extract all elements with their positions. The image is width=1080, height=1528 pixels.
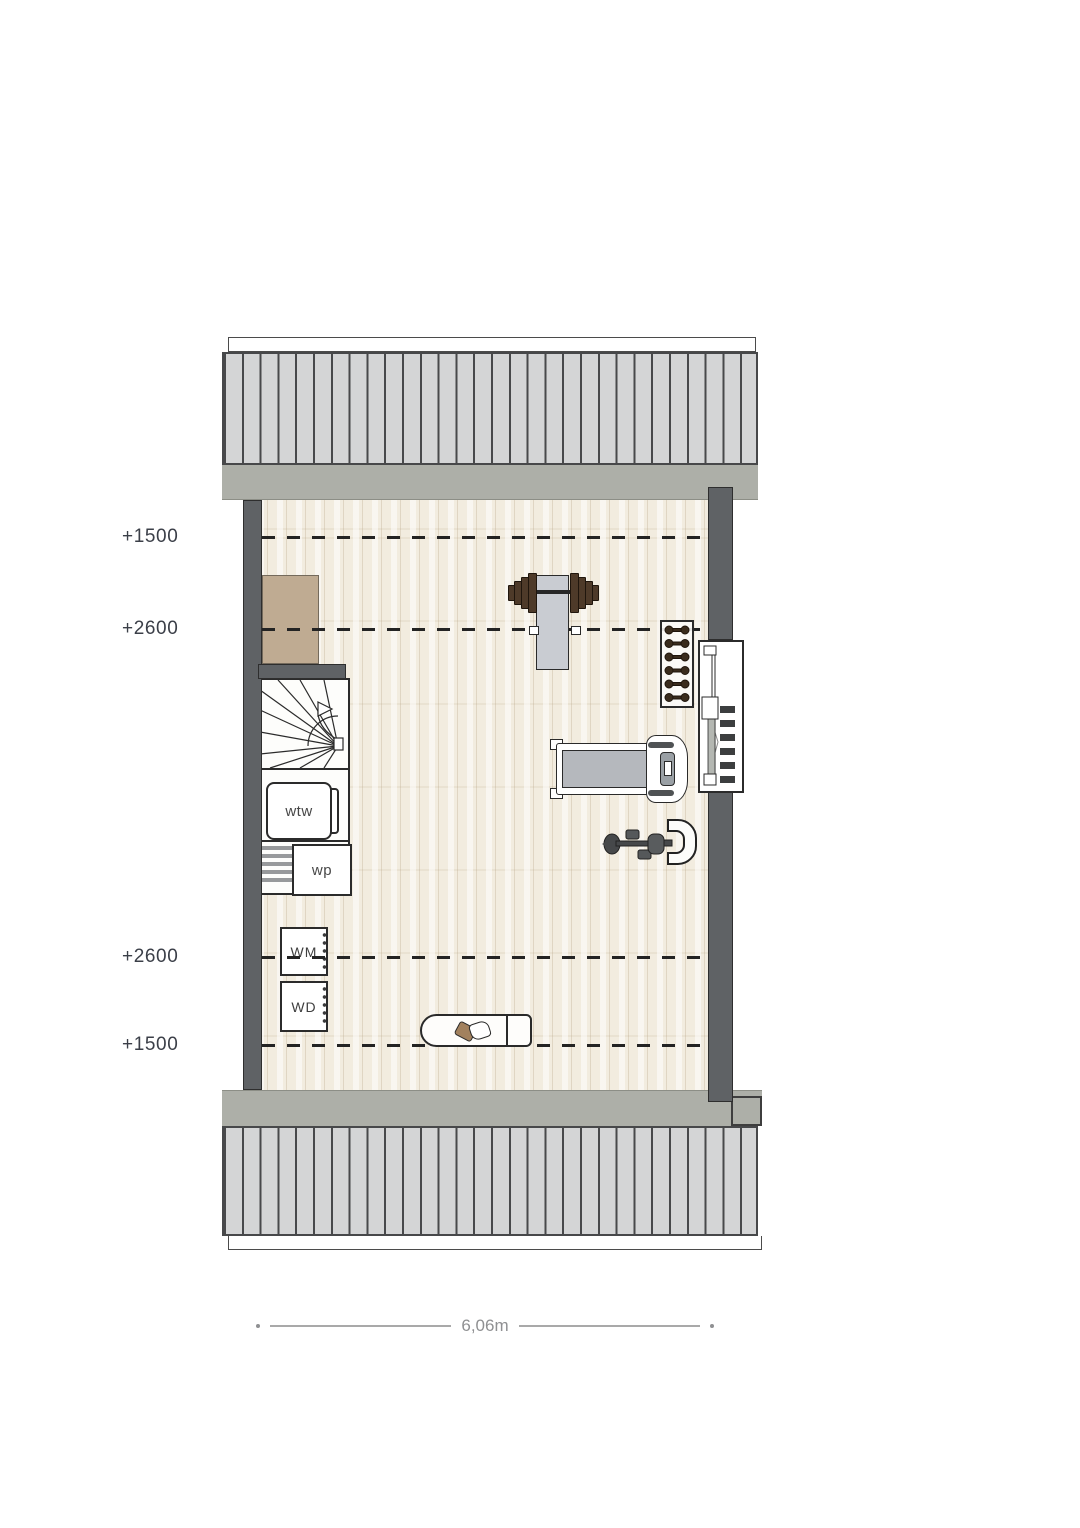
- elevation-marker: +2600: [122, 946, 232, 968]
- wp-label: wp: [312, 862, 332, 879]
- wall-stair-top: [258, 664, 346, 679]
- elevation-marker: +2600: [122, 618, 232, 640]
- dimension-line: [519, 1325, 700, 1327]
- treadmill-handle: [648, 790, 674, 796]
- floorplan-canvas: WM WD: [0, 0, 1080, 1528]
- roof-panels-bottom: [222, 1126, 758, 1236]
- wtw-unit: wtw: [266, 782, 332, 840]
- roof-panels-top: [222, 352, 758, 465]
- wall-right-upper: [708, 487, 733, 640]
- dryer: WD: [280, 981, 328, 1032]
- dumbbell-rack-icon: [662, 622, 692, 706]
- roof-gutter-top: [222, 465, 758, 500]
- exercise-bike-icon: [602, 814, 698, 872]
- dimension-dot: [256, 1324, 260, 1328]
- roof-gutter-bottom: [222, 1090, 762, 1126]
- winder-staircase-icon: [260, 680, 348, 770]
- dumbbell-rack: [660, 620, 694, 708]
- stair-technical-enclosure: wtw wp: [258, 678, 350, 895]
- washing-machine: WM: [280, 927, 328, 976]
- treadmill-display: [664, 761, 672, 776]
- wtw-label: wtw: [285, 803, 312, 820]
- dimension-dot: [710, 1324, 714, 1328]
- dimension-label: 6,06m: [461, 1316, 508, 1336]
- barbell-plate: [592, 585, 599, 601]
- treadmill-belt: [562, 750, 650, 788]
- enclosure-divider-1: [260, 768, 348, 770]
- wall-left: [243, 500, 262, 1090]
- barbell-plate: [528, 573, 537, 613]
- elevation-line-2600-top: [262, 628, 708, 631]
- washing-machine-knobs: [321, 931, 328, 969]
- elevation-marker: +1500: [122, 1034, 232, 1056]
- elevation-line-1500-top: [262, 536, 708, 539]
- surfboard: [420, 1014, 532, 1047]
- exercise-bike: [602, 814, 698, 872]
- dryer-knobs: [321, 985, 328, 1025]
- elevation-marker: +1500: [122, 526, 232, 548]
- surfboard-tail-line: [506, 1016, 508, 1045]
- roof-ridge-bottom: [228, 1236, 762, 1250]
- roof-gutter-step: [731, 1096, 762, 1126]
- window-right: [698, 640, 744, 793]
- treadmill: [550, 735, 688, 803]
- bench-peg: [571, 626, 581, 635]
- elevation-line-2600-bottom: [262, 956, 708, 959]
- roof-ridge-top: [228, 337, 756, 352]
- dimension-line: [270, 1325, 451, 1327]
- enclosure-divider-2: [260, 840, 348, 842]
- dryer-label: WD: [291, 999, 316, 1015]
- wall-right-lower: [708, 792, 733, 1102]
- bench-peg: [529, 626, 539, 635]
- window-detail-icon: [700, 642, 742, 791]
- width-dimension: 6,06m: [256, 1316, 714, 1336]
- storage-closet: [262, 575, 319, 664]
- treadmill-handle: [648, 742, 674, 748]
- wp-unit: wp: [292, 844, 352, 896]
